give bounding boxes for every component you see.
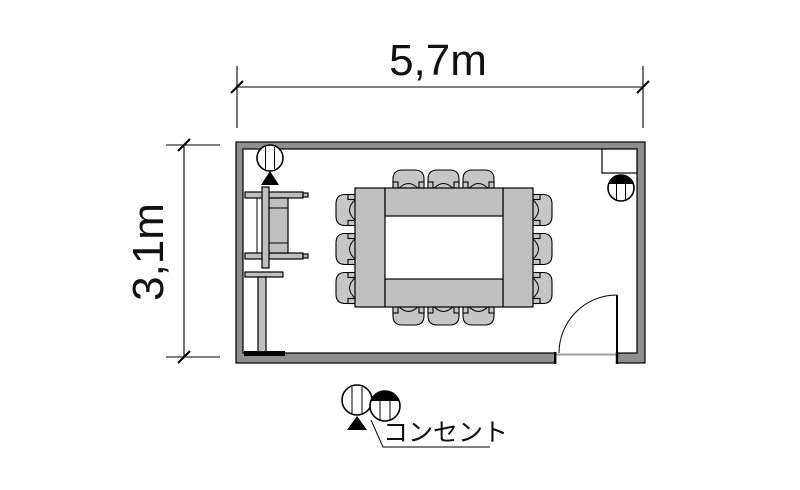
table-right-section	[503, 188, 533, 307]
chair	[393, 305, 424, 325]
door-threshold	[556, 354, 617, 356]
chair	[336, 273, 356, 304]
screen-base	[244, 351, 285, 356]
legend: コンセント	[342, 385, 508, 447]
dimension-left: 3,1m	[124, 139, 220, 363]
chair	[336, 195, 356, 226]
chair	[463, 305, 494, 325]
door-jamb	[554, 352, 556, 364]
floor-plan-canvas: 5,7m 3,1m	[0, 0, 800, 490]
legend-label: コンセント	[383, 419, 508, 447]
chair	[393, 170, 424, 190]
height-dimension-label: 3,1m	[124, 203, 173, 301]
door-opening	[555, 352, 618, 365]
chair	[428, 170, 459, 190]
wall-recess	[602, 149, 637, 173]
width-dimension-label: 5,7m	[389, 36, 487, 85]
chair	[532, 234, 552, 265]
legend-floor-outlet-symbol	[342, 385, 372, 430]
table-left-section	[355, 188, 385, 307]
legend-wall-outlet-symbol	[370, 391, 400, 421]
chair	[463, 170, 494, 190]
chair	[532, 273, 552, 304]
chair	[336, 234, 356, 265]
floor-plan: 5,7m 3,1m	[0, 0, 800, 490]
chair	[428, 305, 459, 325]
dimension-top: 5,7m	[231, 36, 649, 128]
av-cart-pole	[262, 187, 269, 268]
outlet-symbol-wall	[608, 175, 634, 201]
door-jamb	[616, 352, 618, 364]
chair	[532, 195, 552, 226]
table-top-section	[385, 188, 503, 216]
table-bottom-section	[385, 279, 503, 307]
